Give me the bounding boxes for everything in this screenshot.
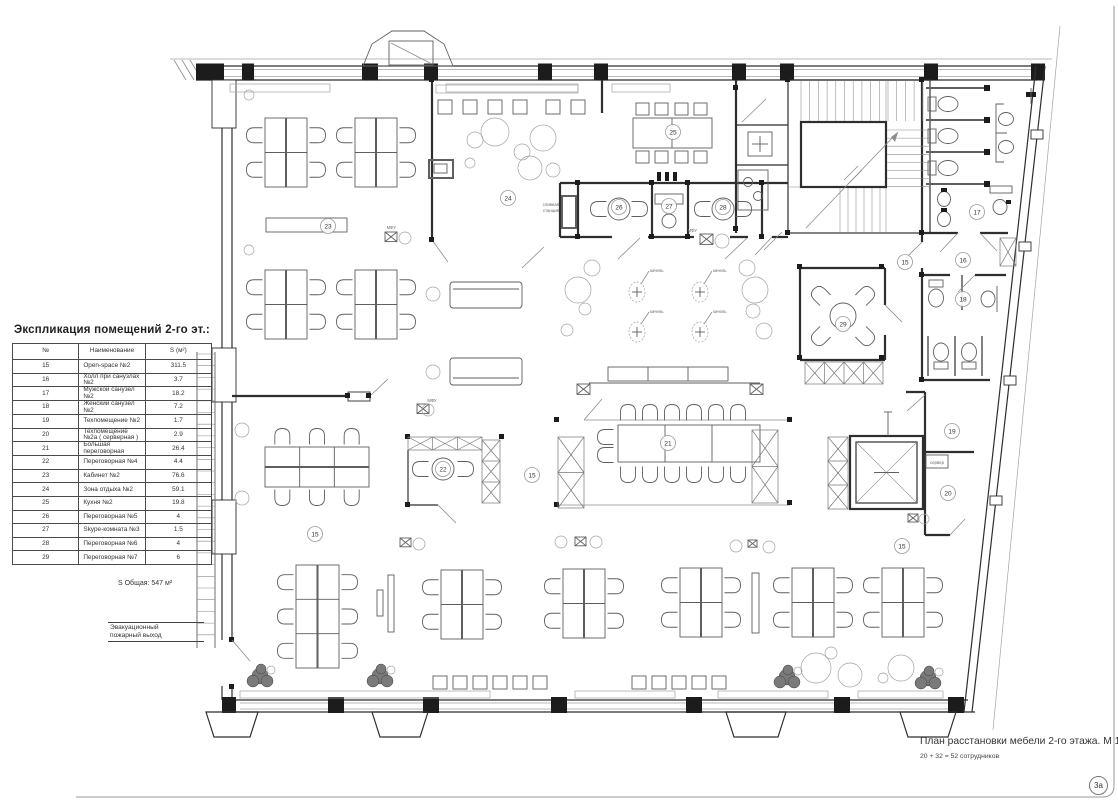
svg-text:26: 26 [615,204,623,211]
room-label: 20 [941,486,956,501]
svg-text:15: 15 [311,531,319,538]
legend-cell: Переговорная №5 [79,510,145,524]
legend-cell: 24 [13,483,79,497]
desk-cluster [337,270,416,339]
legend-row: 24Зона отдыха №259.1 [13,483,212,497]
toilet [928,129,958,144]
pouf [756,323,772,339]
pouf [584,260,600,276]
legend-cell: 1.5 [145,524,211,538]
svg-text:24: 24 [504,195,512,202]
printer-stand [908,514,918,522]
room-label: 15 [525,468,540,483]
room-label: 23 [321,219,336,234]
room-label: 22 [436,462,451,477]
room-labels: 151515151617181920212223242526272829 [308,125,985,554]
desk-cluster [662,568,741,637]
svg-text:15: 15 [528,472,536,479]
pouf [399,232,411,244]
room-label: 29 [836,317,851,332]
pouf [715,234,729,248]
swing-chair [629,322,645,342]
legend-row: 25Кухня №219.8 [13,497,212,511]
legend-total: S Общая: 547 м² [118,580,172,587]
room-label: 21 [661,436,676,451]
legend-cell: 18 [13,401,79,415]
plan-annotation: МФУ [688,228,698,233]
plant [774,665,802,688]
desk-cluster [864,568,943,637]
legend-cell: Мужской санузел №2 [79,387,145,401]
drawing-sheet: 151515151617181920212223242526272829 кач… [0,0,1118,803]
toilet [928,97,958,112]
toilet [928,161,958,176]
legend-cell: Техпомещение №2 [79,415,145,429]
svg-text:23: 23 [324,223,332,230]
legend-cell: 29 [13,551,79,565]
legend-cell: 4 [145,510,211,524]
pouf [518,156,542,180]
legend-cell: 7.2 [145,401,211,415]
svg-text:18: 18 [959,296,967,303]
pouf [825,647,837,659]
pouf [235,423,249,437]
printer-stand [417,404,429,414]
plan-annotation: сервер [930,460,945,465]
pouf [514,144,530,160]
legend-col-header: Наименование [79,344,145,360]
plan-annotation: станция [543,208,560,213]
pouf [235,491,249,505]
printer-stand [750,384,763,394]
room-label: 26 [612,200,627,215]
svg-text:25: 25 [669,129,677,136]
legend-cell: 18.2 [145,387,211,401]
desk-cluster [278,565,358,668]
storage-cabinet [828,437,848,509]
svg-text:28: 28 [719,204,727,211]
legend-cell: 16 [13,373,79,387]
room-label: 16 [956,253,971,268]
legend-cell: 20 [13,428,79,442]
room-label: 18 [956,292,971,307]
legend-cell: 2.9 [145,428,211,442]
swing-chair [692,322,708,342]
pouf [838,663,862,687]
legend-cell: 28 [13,537,79,551]
plant [247,664,275,687]
plan-annotation: МФУ [387,225,397,230]
pouf [888,655,914,681]
drawing-subtitle: 20 + 32 = 52 сотрудников [920,753,1110,760]
plant [915,666,943,689]
pouf [561,324,573,336]
svg-text:15: 15 [898,543,906,550]
desk-cluster [265,429,369,506]
fire-exit-line1: Эвакуационный [110,624,204,632]
legend-cell: Женский санузел №2 [79,401,145,415]
printer-stand [400,538,411,547]
svg-text:22: 22 [439,466,447,473]
svg-text:19: 19 [948,428,956,435]
title-block: План расстановки мебели 2-го этажа. М 1:… [920,736,1110,760]
legend-cell: Open-space №2 [79,360,145,374]
legend-cell: 4 [145,537,211,551]
pouf [426,365,440,379]
legend-cell: 26.4 [145,442,211,456]
plan-annotation: качель [650,268,664,273]
legend-cell: 19.8 [145,497,211,511]
legend-col-header: S (м²) [145,344,211,360]
pouf [465,158,475,168]
pouf [244,90,254,100]
legend-cell: 26 [13,510,79,524]
legend-row: 19Техпомещение №21.7 [13,415,212,429]
room-label: 19 [945,424,960,439]
legend-cell: 27 [13,524,79,538]
room-label: 15 [308,527,323,542]
exterior-walls [170,26,1060,737]
legend-title: Экспликация помещений 2-го эт.: [14,324,216,336]
pouf [763,541,775,553]
drawing-title: План расстановки мебели 2-го этажа. М 1:… [920,736,1110,747]
legend-cell: 76.6 [145,469,211,483]
pouf [878,673,888,683]
legend-cell: 3.7 [145,373,211,387]
storage-cabinet [805,362,883,384]
plan-annotation: сливная [543,202,560,207]
plan-annotation: МФУ [427,398,437,403]
legend-cell: 311.5 [145,360,211,374]
plan-annotation: качель [713,309,727,314]
pouf [730,540,742,552]
storage-cabinet [752,430,778,503]
legend-cell: Переговорная №6 [79,537,145,551]
legend-cell: Кабинет №2 [79,469,145,483]
room-label: 25 [666,125,681,140]
legend-row: 22Переговорная №44.4 [13,456,212,470]
storage-cabinet [482,440,500,503]
legend-row: 20Техпомещение №2а ( серверная )2.9 [13,428,212,442]
fire-exit-line2: пожарный выход [110,632,204,640]
legend-cell: Холл при санузлах №2 [79,373,145,387]
legend-cell: 17 [13,387,79,401]
legend-row: 21Большая переговорная26.4 [13,442,212,456]
svg-text:21: 21 [664,440,672,447]
plan-annotations: качелькачелькачелькачельсливнаястанциясе… [387,202,945,465]
svg-text:17: 17 [973,209,981,216]
svg-text:15: 15 [901,259,909,266]
swing-chair [629,282,645,302]
pouf [467,132,483,148]
pouf [746,304,760,318]
stair-steps [801,81,929,232]
svg-text:20: 20 [944,490,952,497]
svg-text:16: 16 [959,257,967,264]
stair-arrow [806,132,898,228]
generated-furniture [235,90,1016,689]
pouf [739,260,755,276]
printer-stand [575,537,586,546]
legend-row: 26Переговорная №54 [13,510,212,524]
plan-annotation: качель [650,309,664,314]
legend-cell: Зона отдыха №2 [79,483,145,497]
legend-row: 15Open-space №2311.5 [13,360,212,374]
legend-cell: 1.7 [145,415,211,429]
pouf [413,538,425,550]
swing-chairs [629,271,712,342]
desk-cluster [247,118,326,187]
desk-cluster [247,270,326,339]
legend-header-row: №НаименованиеS (м²) [13,344,212,360]
fire-exit-label: Эвакуационный пожарный выход [108,622,204,642]
legend-col-header: № [13,344,79,360]
pouf [555,536,567,548]
legend-row: 29Переговорная №76 [13,551,212,565]
desk-cluster [423,570,502,639]
svg-text:29: 29 [839,321,847,328]
legend-row: 28Переговорная №64 [13,537,212,551]
legend-cell: 6 [145,551,211,565]
legend-cell: 22 [13,456,79,470]
pouf [244,245,254,255]
legend-cell: 21 [13,442,79,456]
legend-cell: Большая переговорная [79,442,145,456]
legend-cell: 15 [13,360,79,374]
pouf [546,163,560,177]
room-label: 28 [716,200,731,215]
pouf [579,303,591,315]
pouf [801,653,831,683]
printer-stand [748,540,757,547]
room-label: 17 [970,205,985,220]
pouf [565,277,591,303]
printer-stand [700,234,713,244]
legend-cell: Skype-комната №3 [79,524,145,538]
legend-row: 17Мужской санузел №218.2 [13,387,212,401]
room-label: 27 [662,199,677,214]
legend-cell: 23 [13,469,79,483]
legend-row: 16Холл при санузлах №23.7 [13,373,212,387]
legend-cell: Кухня №2 [79,497,145,511]
legend-cell: 59.1 [145,483,211,497]
plant [367,664,395,687]
pouf [530,125,556,151]
room-label: 15 [895,539,910,554]
legend-panel: Экспликация помещений 2-го эт.: №Наимено… [12,324,216,565]
wc-fixtures [926,85,1014,369]
legend-cell: 25 [13,497,79,511]
room-label: 15 [898,255,913,270]
storage-cabinet [558,437,584,508]
legend-cell: 19 [13,415,79,429]
legend-row: 23Кабинет №276.6 [13,469,212,483]
desk-cluster [337,118,416,187]
printer-stand [385,232,397,242]
legend-table-body: 15Open-space №2311.516Холл при санузлах … [13,360,212,565]
swing-chair [692,282,708,302]
legend-cell: Переговорная №7 [79,551,145,565]
pouf [426,287,440,301]
desk-cluster [545,569,624,638]
legend-cell: 4.4 [145,456,211,470]
storage-cabinet [408,437,482,450]
legend-cell: Техпомещение №2а ( серверная ) [79,428,145,442]
plants [247,664,943,689]
pouf [742,277,768,303]
printer-stand [577,384,590,394]
storage-cabinet [1000,238,1016,266]
legend-row: 18Женский санузел №27.2 [13,401,212,415]
room-label: 24 [501,191,516,206]
legend-table: №НаименованиеS (м²) 15Open-space №2311.5… [12,343,212,565]
legend-row: 27Skype-комната №31.5 [13,524,212,538]
desk-cluster [774,568,853,637]
pouf [481,118,509,146]
legend-cell: Переговорная №4 [79,456,145,470]
sheet-number-badge: 3а [1089,776,1108,795]
pouf [590,536,602,548]
svg-text:27: 27 [665,203,673,210]
plan-annotation: качель [713,268,727,273]
